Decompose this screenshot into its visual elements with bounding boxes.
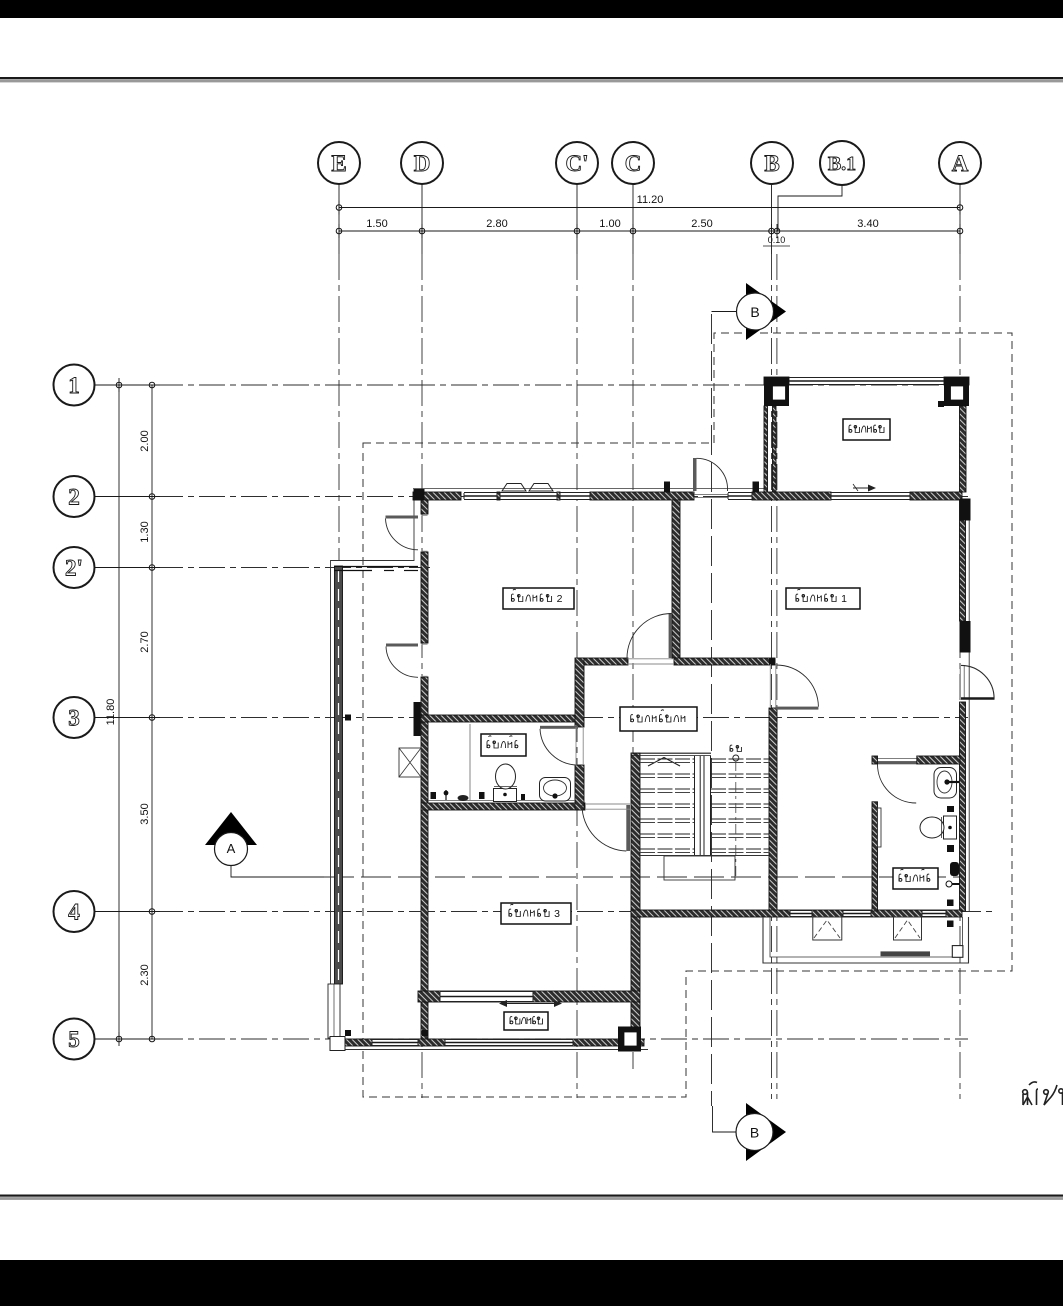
svg-text:C: C [625,151,642,176]
svg-text:2.70: 2.70 [139,631,151,652]
svg-text:1.50: 1.50 [366,218,387,230]
svg-text:5: 5 [68,1027,80,1052]
svg-text:C': C' [566,151,589,176]
svg-text:3: 3 [68,705,80,730]
svg-text:2.00: 2.00 [139,430,151,451]
svg-text:2.30: 2.30 [139,964,151,985]
svg-text:3: 3 [554,908,560,920]
svg-text:0.10: 0.10 [768,235,786,245]
svg-text:2: 2 [68,484,80,509]
svg-text:1.30: 1.30 [139,521,151,542]
svg-text:2: 2 [557,593,563,605]
svg-text:B: B [764,151,779,176]
svg-text:3.50: 3.50 [139,803,151,824]
svg-text:3.40: 3.40 [857,218,878,230]
svg-text:B: B [750,1125,759,1141]
svg-text:1: 1 [68,373,80,398]
svg-text:D: D [414,151,431,176]
svg-text:1.00: 1.00 [599,218,620,230]
svg-text:E: E [331,151,346,176]
svg-text:2.50: 2.50 [691,218,712,230]
svg-text:A: A [952,151,969,176]
svg-text:11.20: 11.20 [637,194,664,206]
svg-text:B.1: B.1 [828,153,856,175]
svg-text:11.80: 11.80 [105,699,117,726]
svg-text:2.80: 2.80 [486,218,507,230]
svg-text:4: 4 [68,899,80,924]
svg-text:2': 2' [65,555,83,580]
svg-text:1: 1 [841,593,847,605]
svg-text:A: A [227,841,236,856]
svg-text:B: B [750,304,759,320]
